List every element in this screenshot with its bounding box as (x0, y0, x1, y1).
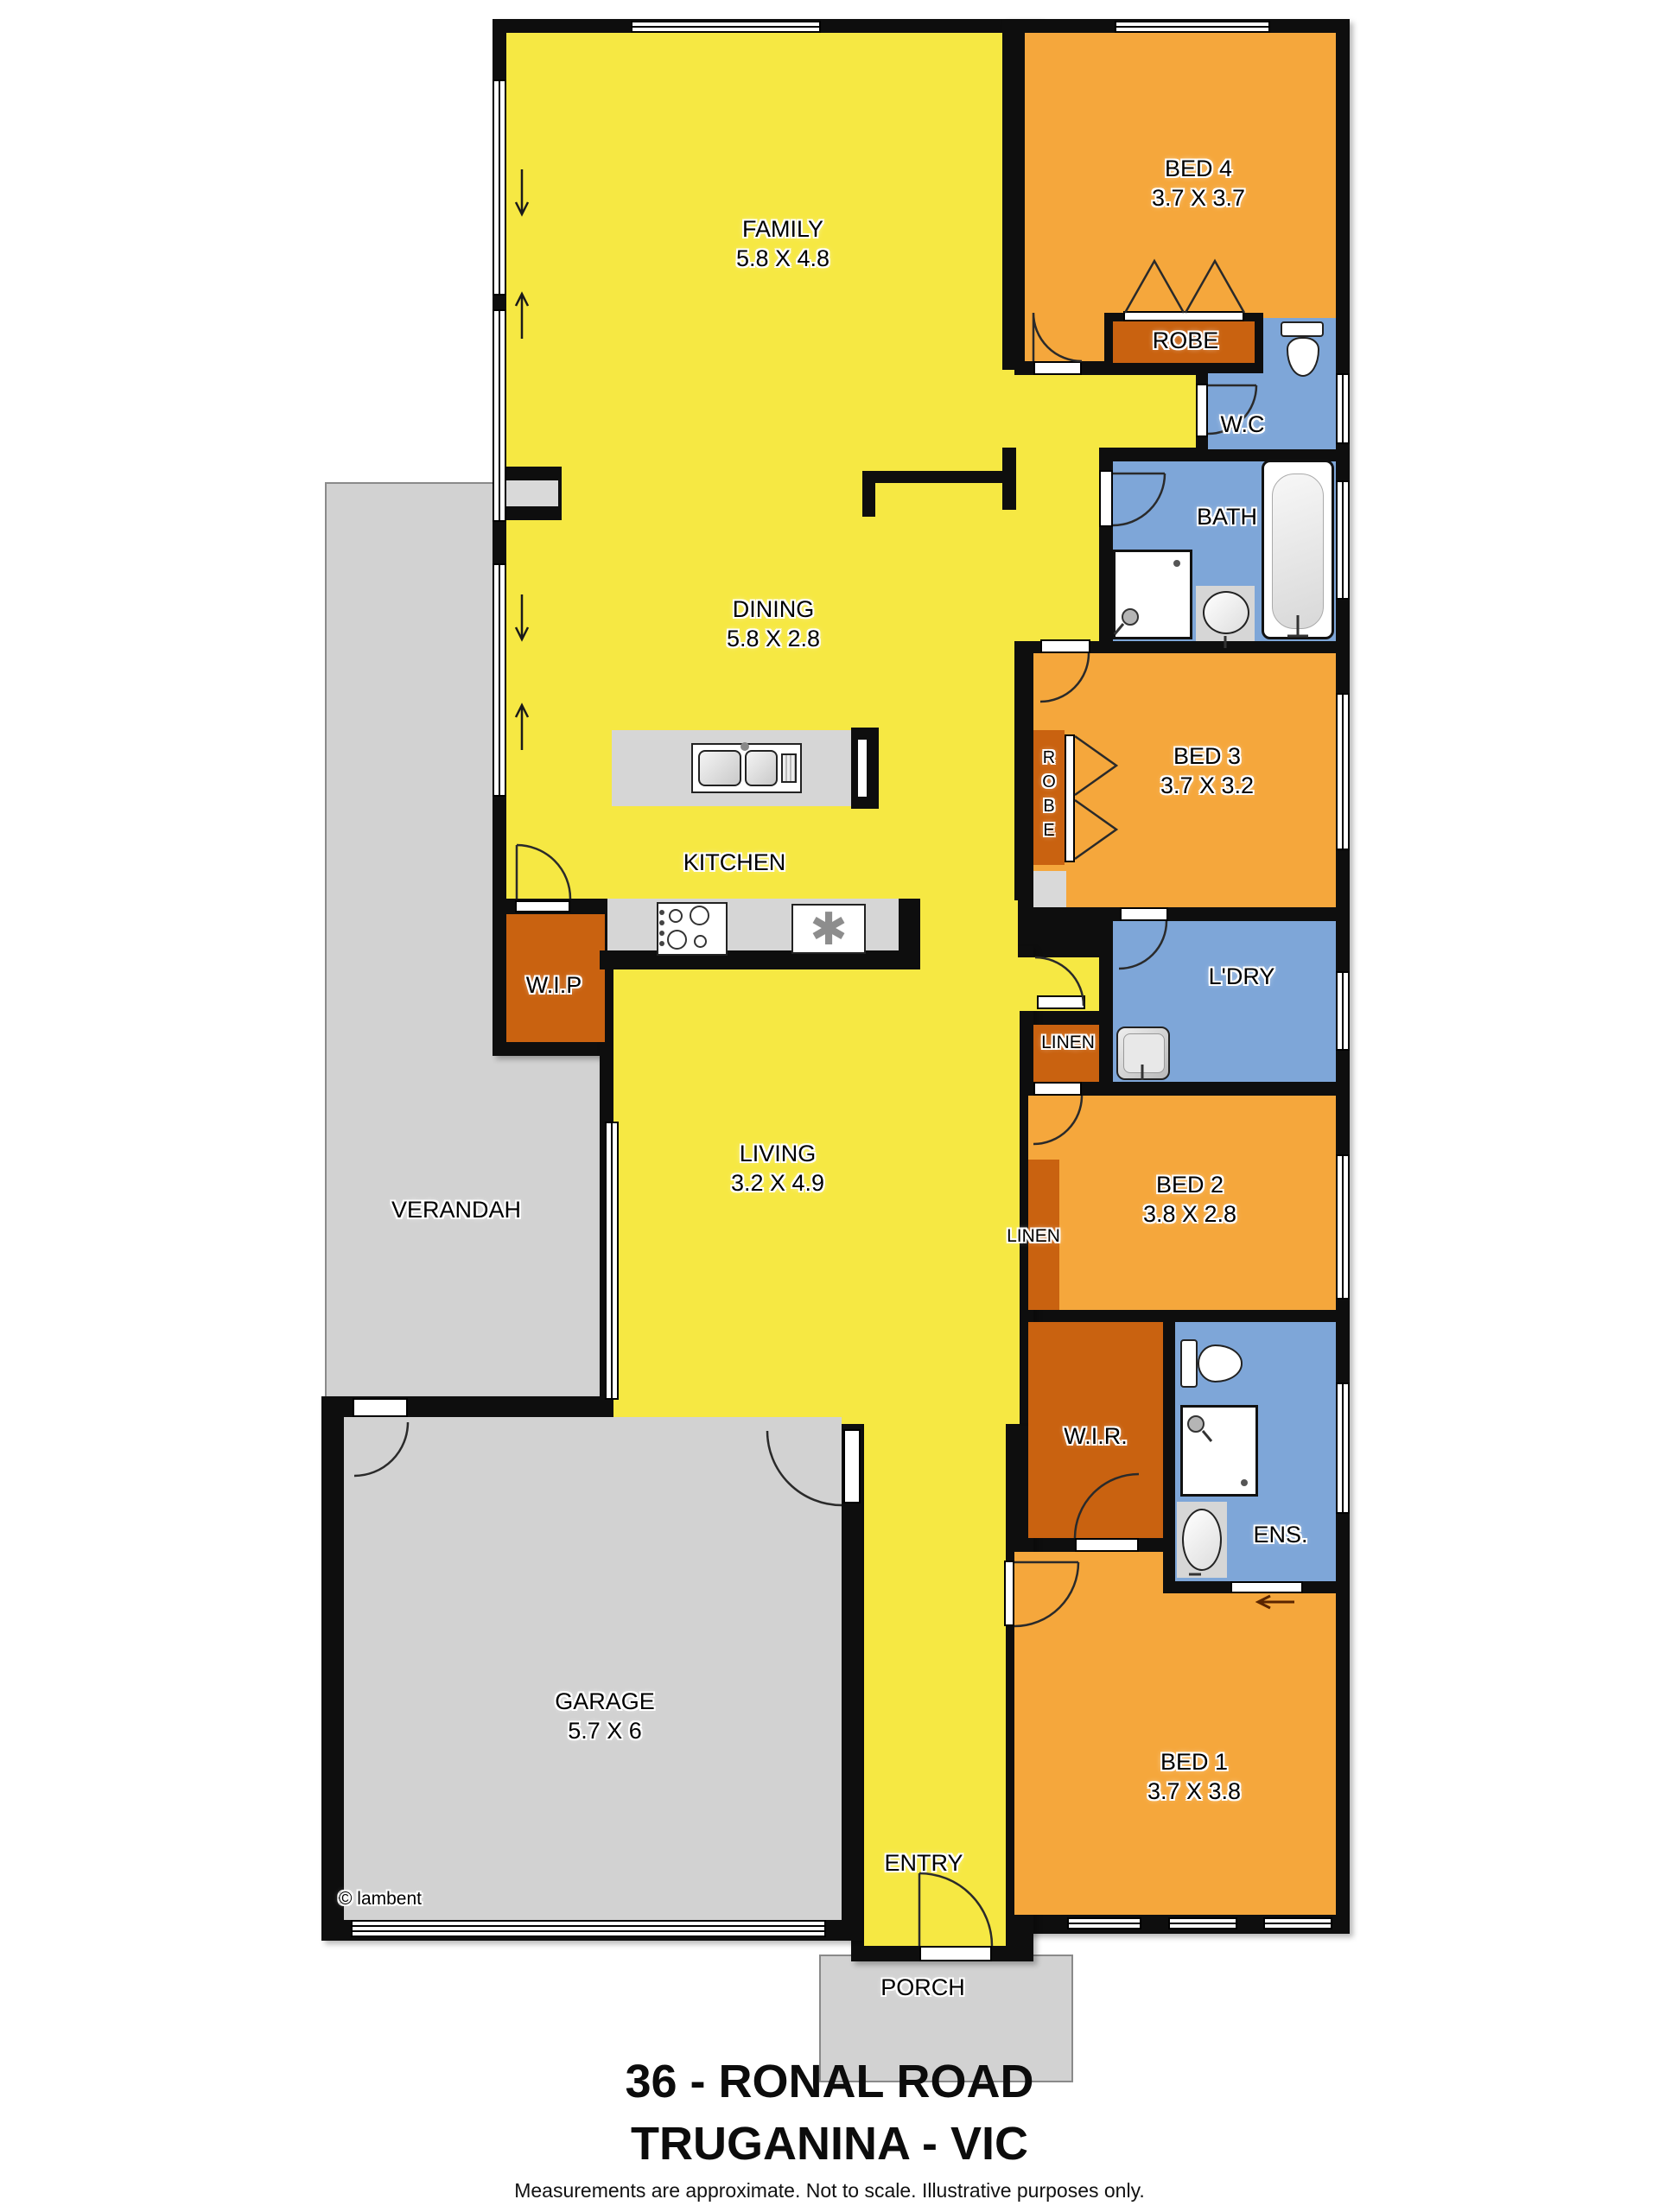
sink-drainer (781, 753, 797, 783)
room-dim: 3.8 X 2.8 (1143, 1199, 1236, 1229)
room-name: GARAGE (555, 1687, 655, 1716)
room-label-bed2: BED 2 3.8 X 2.8 (1143, 1170, 1236, 1229)
room-label-wc: W.C (1221, 410, 1265, 439)
door-opening (1037, 995, 1085, 1009)
window (1263, 1917, 1332, 1929)
door-opening (1230, 1581, 1303, 1593)
floor-plan: ✱ (0, 0, 1659, 2212)
room-dim: 5.7 X 6 (555, 1716, 655, 1745)
room-label-linen-bed2: LINEN (1007, 1226, 1060, 1247)
appliance-asterisk-icon: ✱ (810, 904, 848, 956)
island-end-slot (858, 740, 867, 797)
door-opening (843, 1429, 861, 1503)
room-label-bath: BATH (1197, 502, 1257, 531)
hallway (1014, 375, 1099, 641)
garage-door (351, 1920, 826, 1937)
room-label-laundry: L'DRY (1209, 962, 1275, 991)
toilet-tank-icon (1281, 321, 1324, 337)
basin-icon (1182, 1509, 1222, 1571)
door-opening (1196, 384, 1208, 437)
sliding-door (493, 79, 506, 296)
address-line-1: 36 - RONAL ROAD (625, 2055, 1033, 2108)
storage-niche (1033, 871, 1066, 907)
door-opening (1065, 734, 1075, 862)
burner-icon (694, 935, 707, 948)
room-name: BED 2 (1143, 1170, 1236, 1199)
room-label-bed1: BED 1 3.7 X 3.8 (1147, 1747, 1241, 1806)
room-label-bed3: BED 3 3.7 X 3.2 (1160, 741, 1254, 800)
burner-icon (690, 906, 709, 925)
room-name: FAMILY (736, 214, 829, 244)
room-label-living: LIVING 3.2 X 4.9 (731, 1139, 824, 1198)
door-opening (1075, 1538, 1139, 1552)
basin-icon (1203, 591, 1249, 634)
room-dim: 3.2 X 4.9 (731, 1168, 824, 1198)
shower-base (1113, 550, 1192, 639)
window (1336, 1154, 1350, 1300)
room-name: LIVING (731, 1139, 824, 1168)
sliding-door (493, 309, 506, 522)
room-dim: 3.7 X 3.8 (1147, 1777, 1241, 1806)
door-opening (353, 1398, 408, 1417)
window (631, 21, 821, 33)
door-opening (1033, 361, 1082, 375)
room-label-bed4: BED 4 3.7 X 3.7 (1152, 154, 1245, 213)
toilet-tank-icon (1180, 1339, 1198, 1388)
wall (899, 899, 920, 969)
room-label-linen-hall: LINEN (1041, 1033, 1095, 1053)
room-dim: 3.7 X 3.2 (1160, 771, 1254, 800)
trough-inner (1123, 1033, 1165, 1073)
wall (1002, 19, 1016, 370)
room-label-dining: DINING 5.8 X 2.8 (727, 594, 820, 653)
address-line-2: TRUGANINA - VIC (631, 2117, 1028, 2171)
hallway-notch (1099, 375, 1196, 448)
copyright-watermark: © lambent (339, 1889, 422, 1910)
room-label-wir: W.I.R. (1064, 1421, 1128, 1451)
room-label-robe-bed3: ROBE (1040, 748, 1058, 845)
door-opening (1099, 470, 1113, 527)
room-label-porch: PORCH (880, 1973, 965, 2002)
door-opening (515, 900, 570, 912)
door-opening (1120, 907, 1168, 921)
door-panel (505, 480, 558, 506)
wall (862, 471, 1014, 483)
disclaimer-text: Measurements are approximate. Not to sca… (514, 2179, 1145, 2202)
window (1168, 1917, 1237, 1929)
room-dim: 5.8 X 2.8 (727, 624, 820, 653)
door-opening (919, 1946, 992, 1961)
burner-icon (669, 909, 683, 923)
window (1336, 480, 1350, 600)
door-opening (1040, 639, 1090, 653)
sink-bowl (745, 750, 778, 786)
room-label-wip: W.I.P (526, 970, 582, 1000)
wall (600, 950, 920, 969)
door-opening (1123, 311, 1244, 321)
room-name: BED 4 (1152, 154, 1245, 183)
room-label-entry: ENTRY (884, 1848, 963, 1878)
room-label-verandah: VERANDAH (391, 1195, 521, 1224)
shower-base (1180, 1405, 1258, 1497)
garage-floor (344, 1417, 842, 1920)
room-dim: 5.8 X 4.8 (736, 244, 829, 273)
room-label-kitchen: KITCHEN (683, 848, 786, 877)
window (1115, 21, 1270, 33)
bathtub-inner (1272, 474, 1324, 629)
window (1336, 693, 1350, 850)
bed1-area (1014, 1552, 1336, 1915)
window (1336, 373, 1350, 444)
window (605, 1122, 619, 1400)
room-label-robe-bed4: ROBE (1153, 326, 1219, 355)
wall (862, 471, 875, 517)
window (1067, 1917, 1141, 1929)
sink-bowl (698, 750, 741, 786)
room-label-family: FAMILY 5.8 X 4.8 (736, 214, 829, 273)
room-dim: 3.7 X 3.7 (1152, 183, 1245, 213)
room-label-ens: ENS. (1253, 1520, 1307, 1549)
sliding-door (493, 563, 506, 797)
kitchen-passage (920, 900, 1018, 969)
burner-icon (667, 930, 687, 950)
room-label-garage: GARAGE 5.7 X 6 (555, 1687, 655, 1745)
window (1336, 971, 1350, 1051)
door-opening (1033, 1082, 1082, 1096)
door-opening (1004, 1560, 1014, 1626)
room-name: BED 3 (1160, 741, 1254, 771)
room-name: DINING (727, 594, 820, 624)
window (1336, 1382, 1350, 1514)
room-name: BED 1 (1147, 1747, 1241, 1777)
